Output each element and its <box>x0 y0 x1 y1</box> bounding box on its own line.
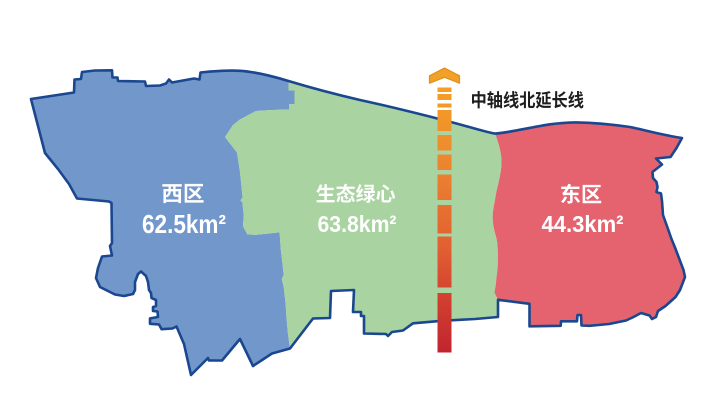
svg-text:62.5km²: 62.5km² <box>142 209 226 239</box>
svg-text:63.8km²: 63.8km² <box>318 211 397 237</box>
svg-text:44.3km²: 44.3km² <box>542 211 624 237</box>
